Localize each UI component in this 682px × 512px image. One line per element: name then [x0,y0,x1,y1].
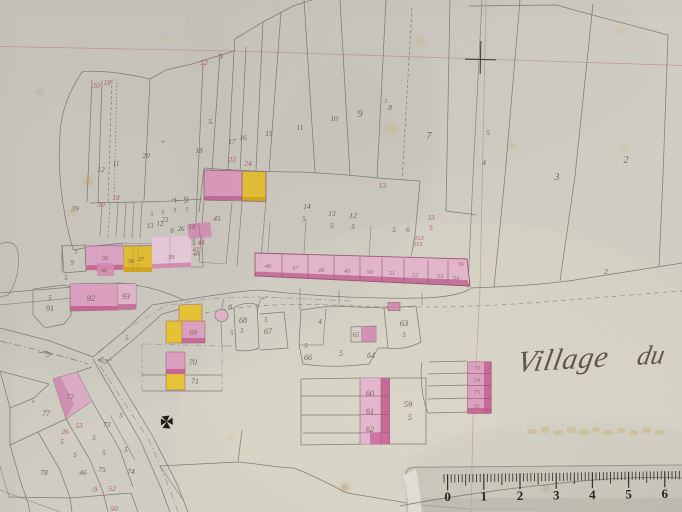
svg-text:9: 9 [70,259,74,267]
svg-text:51: 51 [389,270,396,277]
svg-text:Village: Village [515,339,613,379]
svg-text:38: 38 [100,268,107,274]
svg-text:11: 11 [113,159,120,168]
svg-text:26: 26 [61,427,69,436]
svg-text:5: 5 [125,334,129,342]
svg-text:5: 5 [75,250,78,256]
svg-text:91: 91 [46,304,54,313]
svg-text:14: 14 [303,202,311,211]
svg-text:70: 70 [189,358,197,367]
svg-text:69: 69 [189,328,197,337]
svg-text:78: 78 [40,468,48,477]
svg-text:5: 5 [625,486,632,501]
svg-text:-9: -9 [91,485,97,494]
svg-text:39: 39 [167,254,175,261]
svg-text:50: 50 [367,269,374,276]
svg-text:1: 1 [384,98,387,105]
svg-text:16: 16 [239,133,247,142]
svg-text:30: 30 [91,81,100,90]
svg-text:52: 52 [108,484,116,493]
svg-text:5: 5 [151,212,154,218]
svg-text:93: 93 [122,292,130,301]
svg-text:26: 26 [178,225,186,233]
svg-text:5: 5 [264,316,268,324]
svg-text:4: 4 [318,318,322,326]
svg-text:5: 5 [92,434,96,442]
svg-text:5: 5 [124,446,128,454]
svg-text:62: 62 [366,425,374,434]
svg-text:52: 52 [412,272,419,279]
svg-text:8: 8 [228,303,232,312]
svg-text:10: 10 [330,114,338,123]
svg-text:50: 50 [110,504,118,512]
svg-text:9: 9 [358,109,363,120]
svg-text:75: 75 [98,465,106,474]
svg-text:68: 68 [239,316,247,325]
svg-text:47: 47 [292,265,299,272]
svg-text:5: 5 [186,207,189,213]
svg-text:5: 5 [240,327,244,335]
svg-text:N: N [217,52,224,61]
svg-text:64: 64 [367,351,375,360]
svg-text:11: 11 [297,123,304,132]
svg-text:73: 73 [474,366,480,372]
svg-text:5: 5 [302,214,306,223]
svg-text:2: 2 [624,155,629,166]
svg-text:60: 60 [366,389,374,398]
svg-text:71: 71 [191,377,199,386]
svg-text:48: 48 [318,267,325,274]
svg-text:5: 5 [48,294,52,302]
svg-text:5: 5 [73,451,77,459]
svg-text:115: 115 [413,241,423,248]
svg-text:12: 12 [349,211,357,220]
svg-text:53: 53 [75,421,83,430]
svg-text:36: 36 [127,258,135,265]
svg-text:74: 74 [127,467,135,476]
svg-text:4: 4 [482,158,486,167]
svg-text:39: 39 [70,204,79,213]
svg-text:+: + [31,398,36,406]
svg-text:75: 75 [474,390,480,396]
svg-text:65: 65 [353,331,361,339]
svg-text:13.: 13. [378,181,388,190]
svg-text:20: 20 [142,151,150,160]
svg-text:5: 5 [330,221,334,230]
svg-text:46: 46 [265,263,272,270]
svg-text:67: 67 [264,327,273,336]
svg-text:5: 5 [339,349,343,358]
svg-text:+: + [160,137,165,146]
svg-text:5: 5 [102,449,106,457]
svg-text:63: 63 [400,318,409,328]
svg-text:12: 12 [97,165,105,174]
svg-text:59: 59 [404,399,413,409]
svg-text:92: 92 [87,293,96,303]
svg-text:4: 4 [589,487,596,502]
svg-text:5: 5 [60,438,64,446]
svg-text:54: 54 [453,275,459,282]
svg-text:17: 17 [228,137,236,146]
svg-text:77: 77 [42,409,51,418]
svg-text:18: 18 [112,193,120,202]
svg-text:1: 1 [481,489,488,504]
svg-text:5: 5 [486,128,490,137]
svg-text:8: 8 [170,227,174,235]
svg-text:61: 61 [366,407,374,416]
svg-text:6: 6 [406,225,410,234]
svg-text:5: 5 [408,413,412,422]
svg-text:15: 15 [265,129,273,138]
svg-text:5: 5 [230,329,234,337]
svg-text:30: 30 [96,200,105,209]
svg-text:41: 41 [193,246,200,254]
svg-text:5: 5 [351,222,355,231]
svg-text:36: 36 [101,255,109,262]
svg-text:23: 23 [228,155,236,164]
svg-text:53: 53 [437,273,444,280]
svg-text:8: 8 [388,103,392,112]
svg-text:0: 0 [444,489,451,504]
svg-text:10: 10 [189,223,197,231]
svg-text:13: 13 [147,222,155,230]
svg-text:5: 5 [392,225,396,234]
svg-text:66: 66 [304,353,312,362]
svg-text:74: 74 [474,377,480,384]
svg-text:3: 3 [553,487,560,502]
svg-text:46: 46 [79,468,87,477]
svg-text:5: 5 [429,223,433,232]
svg-text:72: 72 [66,392,74,401]
svg-text:24: 24 [244,159,252,168]
svg-text:18: 18 [103,78,111,87]
svg-text:2: 2 [517,488,524,503]
svg-text:52: 52 [200,58,208,67]
svg-text:18: 18 [195,146,203,155]
svg-text:3: 3 [554,172,560,183]
svg-text:2: 2 [604,267,608,276]
svg-text:45: 45 [214,215,222,223]
svg-text:51: 51 [474,404,480,410]
svg-text:33: 33 [426,213,435,222]
svg-text:5: 5 [64,274,68,282]
svg-text:5: 5 [402,331,406,339]
svg-text:5: 5 [304,342,308,350]
svg-text:44: 44 [198,239,206,247]
svg-text:49: 49 [344,268,351,275]
svg-text:73: 73 [103,420,111,429]
svg-text:13: 13 [328,209,336,218]
svg-text:5.: 5. [208,117,214,126]
svg-text:6: 6 [662,486,669,501]
svg-text:37: 37 [137,256,145,263]
svg-text:9: 9 [184,195,189,205]
svg-text:56: 56 [458,261,465,268]
svg-text:23: 23 [162,216,170,224]
svg-text:5: 5 [119,412,123,420]
svg-text:5: 5 [174,208,177,214]
